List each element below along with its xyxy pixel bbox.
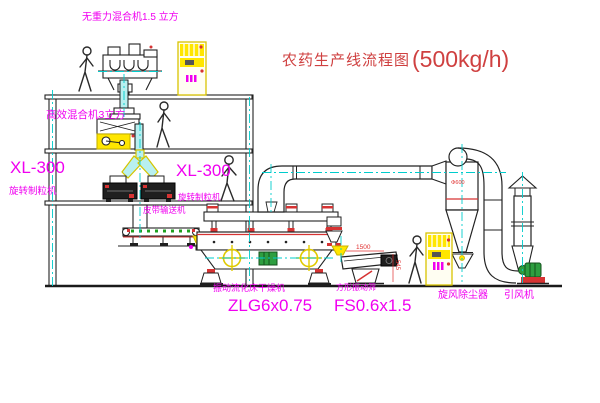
person-figure-4	[409, 236, 423, 283]
drawing-title: 农药生产线流程图 (500kg/h)	[282, 46, 509, 73]
floor-middle	[45, 149, 252, 153]
granulator-center-model-label: XL-300	[176, 162, 231, 179]
floor-top	[45, 95, 252, 99]
cabinet-marking	[190, 75, 193, 82]
process-flow-diagram: 农药生产线流程图 (500kg/h) 无重力混合机1.5 立方 高效混合机3立方…	[0, 0, 600, 403]
screen-height-dimension: 545	[394, 260, 400, 270]
cabinet-marking	[194, 75, 197, 82]
bucket-elevator-1	[178, 42, 206, 95]
red-indicator-dot	[150, 46, 153, 49]
dryer-top-manifold	[204, 212, 338, 221]
cabinet-marking	[433, 262, 436, 270]
drawing-title-capacity: (500kg/h)	[412, 46, 509, 73]
screen-name-label: 方形振动筛	[336, 284, 376, 292]
vibration-motor	[259, 252, 277, 265]
cyclone-diameter-dimension: Φ600	[451, 181, 465, 187]
person-figure-2	[157, 102, 170, 147]
belt-conveyor	[123, 228, 200, 246]
dryer-model-label: ZLG6x0.75	[228, 297, 312, 314]
granulator-center-name-label: 旋转制粒机	[178, 193, 221, 202]
cabinet-marking	[437, 262, 440, 270]
granulator-left-model-label: XL-300	[10, 159, 65, 176]
gravity-mixer-label: 无重力混合机1.5 立方	[82, 13, 179, 23]
cabinet-marking	[441, 262, 444, 270]
screen-length-dimension: 1500	[356, 245, 370, 252]
belt-conveyor-label: 皮带输送机	[143, 206, 186, 215]
high-mixer-label: 高效混合机3立方	[46, 110, 125, 121]
cyclone-label: 旋风除尘器	[438, 291, 488, 301]
cabinet-marking	[186, 75, 189, 82]
gravity-free-mixer	[98, 44, 162, 95]
elevator-window	[432, 252, 441, 257]
granulator-right	[141, 176, 175, 202]
cyclone-outlet-elbow	[449, 148, 467, 166]
person-figure-1	[79, 47, 93, 91]
elevator-window	[185, 60, 194, 65]
fan-base	[521, 277, 545, 283]
drawing-title-text: 农药生产线流程图	[282, 49, 410, 70]
bucket-elevator-2	[426, 233, 452, 285]
granulator-left	[103, 176, 137, 202]
vibrating-screen	[341, 251, 398, 284]
fluid-bed-dryer	[197, 204, 338, 286]
screen-model-label: FS0.6x1.5	[334, 297, 412, 314]
dryer-name-label: 振动流化床干燥机	[213, 284, 285, 293]
granulator-left-name-label: 旋转制粒机	[9, 187, 57, 197]
fan-label: 引风机	[504, 291, 534, 301]
induced-draft-fan	[517, 263, 549, 284]
